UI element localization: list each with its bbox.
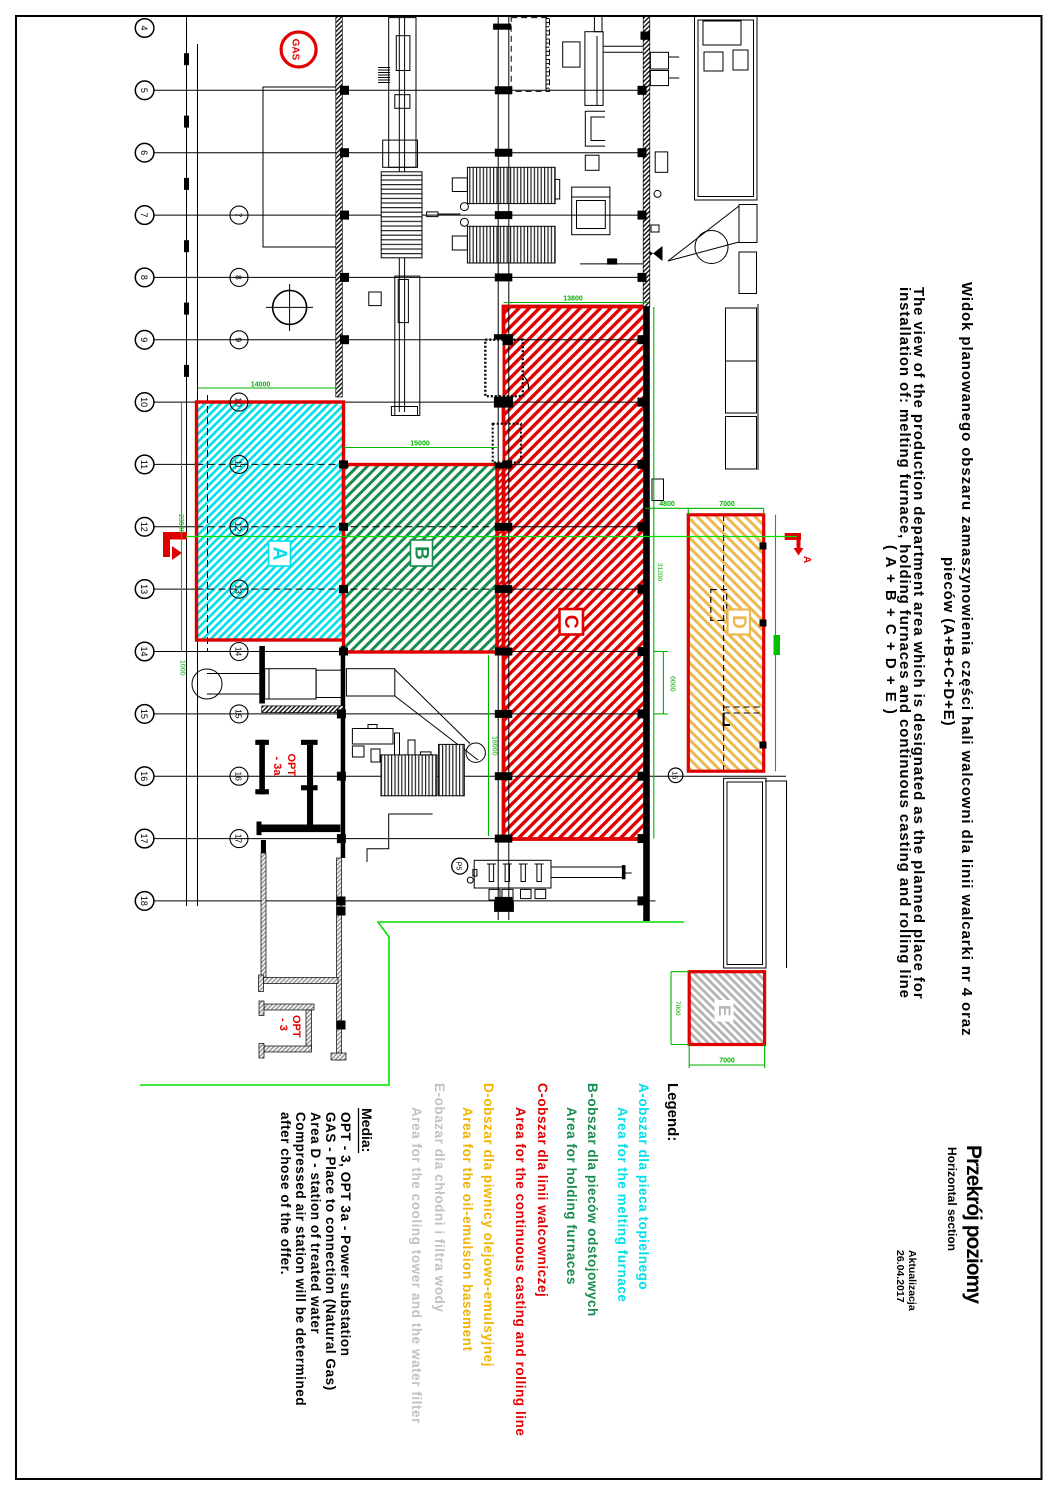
svg-text:8: 8 <box>234 275 244 280</box>
svg-text:10: 10 <box>234 397 244 407</box>
svg-text:Area for holding furnaces: Area for holding furnaces <box>564 1107 579 1285</box>
svg-text:1000: 1000 <box>179 660 186 676</box>
svg-text:OPT: OPT <box>285 754 297 777</box>
svg-text:7000: 7000 <box>674 1001 681 1016</box>
svg-text:GAS - Place to connection (Nat: GAS - Place to connection (Natural Gas) <box>323 1112 338 1391</box>
svg-text:6000: 6000 <box>669 676 676 692</box>
svg-text:16: 16 <box>234 771 244 781</box>
svg-text:14: 14 <box>234 647 244 657</box>
svg-text:- 3: - 3 <box>277 1018 289 1031</box>
svg-text:- 3a: - 3a <box>271 757 283 777</box>
svg-text:8: 8 <box>139 275 149 280</box>
svg-text:C: C <box>560 615 581 629</box>
svg-text:pieców (A+B+C+D+E): pieców (A+B+C+D+E) <box>940 557 957 727</box>
svg-text:C-obszar dla linii walcownicze: C-obszar dla linii walcowniczej <box>535 1083 550 1297</box>
svg-text:Area for the melting furnace: Area for the melting furnace <box>615 1107 630 1302</box>
svg-text:E: E <box>715 1005 734 1016</box>
svg-text:13: 13 <box>139 584 149 594</box>
svg-text:D: D <box>728 615 749 629</box>
svg-text:9: 9 <box>234 337 244 342</box>
svg-text:Aktualizacja: Aktualizacja <box>906 1250 918 1311</box>
svg-text:13800: 13800 <box>563 296 583 303</box>
svg-text:26.04.2017: 26.04.2017 <box>894 1250 906 1303</box>
svg-text:7000: 7000 <box>719 501 735 508</box>
svg-text:15: 15 <box>139 709 149 719</box>
svg-text:( A + B + C + D + E ): ( A + B + C + D + E ) <box>882 545 899 715</box>
svg-text:Area D - station of treated wa: Area D - station of treated water <box>308 1112 323 1334</box>
svg-text:7: 7 <box>234 213 244 218</box>
svg-text:14: 14 <box>139 646 149 656</box>
svg-text:11: 11 <box>139 460 149 469</box>
svg-text:14000: 14000 <box>251 382 271 389</box>
svg-text:GAS: GAS <box>290 39 301 61</box>
svg-text:15: 15 <box>234 709 244 719</box>
svg-text:Area for the oil-emulsion base: Area for the oil-emulsion basement <box>460 1107 475 1352</box>
svg-text:Legend:: Legend: <box>664 1083 681 1141</box>
svg-text:5: 5 <box>139 88 149 93</box>
svg-text:15000: 15000 <box>410 441 430 448</box>
svg-text:Media:: Media: <box>359 1108 375 1152</box>
svg-text:31200: 31200 <box>656 563 663 581</box>
svg-text:12: 12 <box>139 522 149 532</box>
svg-text:16: 16 <box>139 771 149 781</box>
svg-text:Area for the continuous castin: Area for the continuous casting and roll… <box>513 1107 528 1436</box>
svg-text:D-obszar dla piwnicy olejowo-e: D-obszar dla piwnicy olejowo-emulsyjnej <box>481 1083 496 1367</box>
svg-text:18: 18 <box>139 896 149 906</box>
svg-text:7000: 7000 <box>719 1058 735 1065</box>
svg-text:Compressed air station will be: Compressed air station will be determine… <box>293 1112 308 1406</box>
svg-text:12: 12 <box>234 522 244 532</box>
svg-text:A: A <box>801 556 812 563</box>
svg-text:17: 17 <box>139 834 149 844</box>
svg-text:10: 10 <box>139 397 149 407</box>
svg-text:4800: 4800 <box>659 501 675 508</box>
svg-text:16: 16 <box>671 771 680 779</box>
svg-text:23500: 23500 <box>177 514 184 534</box>
svg-text:after chose of the offer.: after chose of the offer. <box>278 1112 293 1275</box>
svg-text:OPT: OPT <box>290 1015 302 1038</box>
svg-text:B-obszar dla pieców odstojowyc: B-obszar dla pieców odstojowych <box>585 1083 600 1317</box>
svg-text:7: 7 <box>139 213 149 218</box>
svg-text:18000: 18000 <box>491 736 498 756</box>
svg-text:11: 11 <box>234 460 244 469</box>
svg-text:E-obazar dla chłodni i filtra: E-obazar dla chłodni i filtra wody <box>432 1083 447 1312</box>
svg-text:Przekrój poziomy: Przekrój poziomy <box>962 1145 985 1304</box>
svg-text:9: 9 <box>139 337 149 342</box>
svg-text:B: B <box>411 546 432 560</box>
svg-text:13: 13 <box>234 584 244 594</box>
svg-text:Horizontal section: Horizontal section <box>945 1147 959 1251</box>
svg-text:Area for the cooling tower and: Area for the cooling tower and the water… <box>409 1107 424 1424</box>
svg-text:A-obszar dla pieca topielnego: A-obszar dla pieca topielnego <box>636 1083 651 1290</box>
svg-text:17: 17 <box>234 834 244 844</box>
svg-text:P5: P5 <box>455 862 462 871</box>
svg-text:4: 4 <box>139 25 149 30</box>
svg-text:OPT - 3, OPT 3a - Power substa: OPT - 3, OPT 3a - Power substation <box>338 1112 353 1357</box>
svg-text:A: A <box>269 547 290 561</box>
svg-text:Widok planowanego obszaru zama: Widok planowanego obszaru zamaszynowieni… <box>958 282 975 1036</box>
svg-text:6: 6 <box>139 150 149 155</box>
